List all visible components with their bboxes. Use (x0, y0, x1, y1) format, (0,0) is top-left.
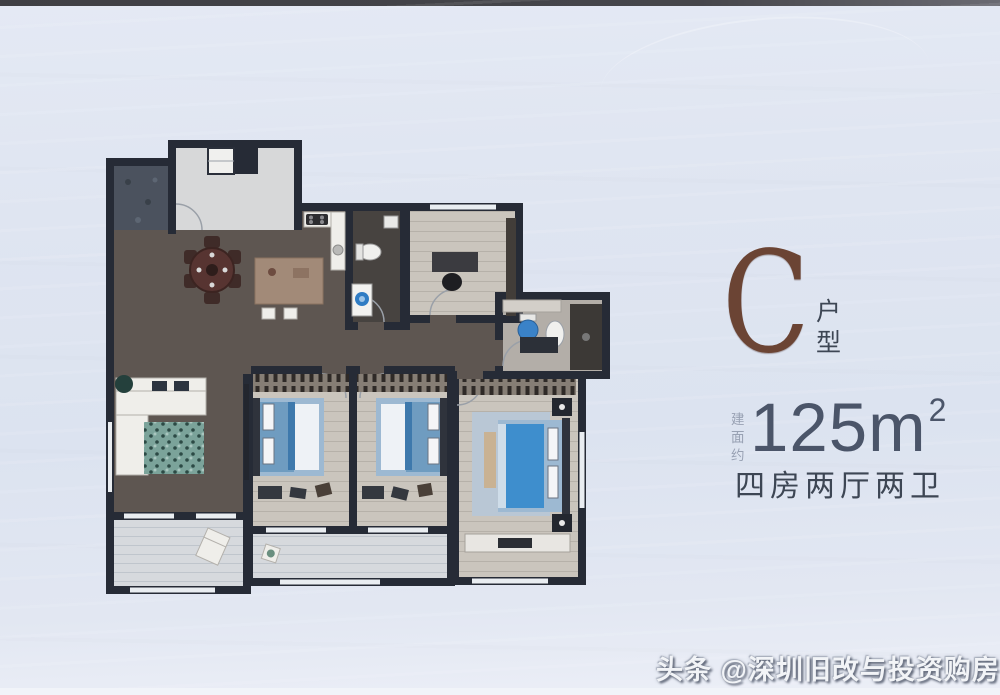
bed-icon (498, 418, 570, 514)
photo-glare (595, 4, 934, 154)
desk-icon (432, 252, 478, 272)
washing-machine-icon (352, 284, 372, 316)
unit-layout-label: 四房两厅两卫 (735, 461, 945, 505)
wardrobe-icon (357, 374, 447, 392)
area-value: 125m2 (750, 393, 945, 462)
unit-type-label: 户型 (816, 297, 843, 360)
area-prefix-label: 建面约 (731, 411, 747, 466)
corridor-extension-floor (410, 323, 495, 366)
floor-plan-image (100, 132, 616, 604)
plant-icon (115, 375, 133, 393)
unit-letter: C (722, 234, 810, 374)
planter-floor (114, 166, 168, 230)
bed-icon (376, 398, 447, 476)
entry-cabinet-icon (208, 148, 234, 174)
wardrobe-icon (459, 379, 576, 395)
console-table-icon (520, 337, 558, 353)
tv-console-icon (244, 384, 249, 480)
closet-icon (465, 534, 570, 552)
bench-icon (484, 432, 496, 488)
vanity-icon (503, 300, 561, 312)
wardrobe-icon (253, 374, 349, 392)
area-superscript: 2 (929, 392, 948, 428)
photo-bottom-edge (0, 688, 1000, 695)
shower-head-icon (582, 333, 590, 341)
small-balcony-floor (251, 534, 447, 578)
rug-icon (144, 422, 204, 474)
sink-icon (384, 216, 398, 228)
dresser-icon (258, 486, 282, 499)
office-chair-icon (442, 273, 462, 291)
dresser-icon (362, 486, 384, 499)
area-number: 125m (750, 389, 927, 466)
watermark-text: 头条 @深圳旧改与投资购房 (656, 648, 1000, 687)
photo-background: C 户型 建面约 125m2 四房两厅两卫 头条 @深圳旧改与投资购房 (0, 0, 1000, 695)
bed-icon (253, 398, 324, 476)
photo-top-edge (0, 0, 1000, 6)
